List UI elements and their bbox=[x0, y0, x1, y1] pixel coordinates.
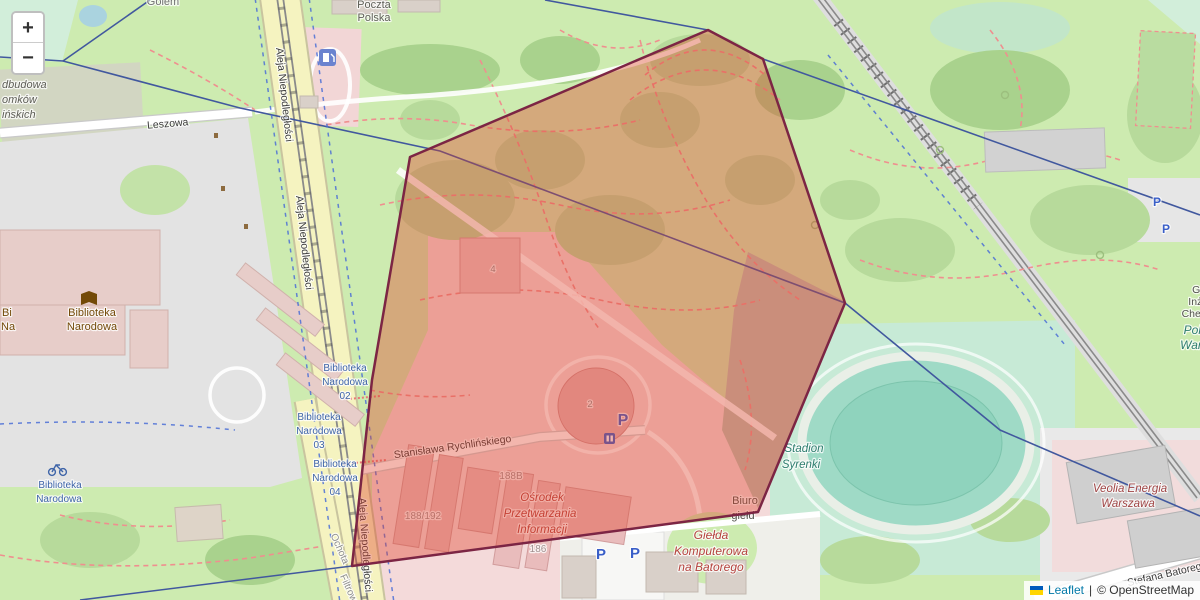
landuse-scrub bbox=[930, 2, 1070, 54]
pond bbox=[79, 5, 107, 27]
map-label-parking-p-2: P bbox=[596, 546, 606, 563]
map-label-odbudowa-1: dbudowa bbox=[2, 79, 47, 91]
building-library-main bbox=[0, 230, 160, 305]
ukraine-flag-icon bbox=[1030, 586, 1043, 595]
map-label-bus-stop-02-2: Narodowa bbox=[322, 377, 368, 388]
map-label-gielda-2: Komputerowa bbox=[674, 544, 748, 558]
leaflet-link[interactable]: Leaflet bbox=[1048, 583, 1084, 597]
map-label-poczta-polska-1: Poczta bbox=[357, 0, 392, 11]
map-label-bus-stop-03-1: Biblioteka bbox=[297, 412, 341, 423]
osm-map-svg[interactable]: GolemdbudowaomkówińskichLeszowaAleja Nie… bbox=[0, 0, 1200, 600]
map-label-veolia-2: Warszawa bbox=[1101, 498, 1154, 510]
map-label-gielda-1: Giełda bbox=[694, 528, 729, 542]
map-label-bus-stop-04-2: Narodowa bbox=[312, 473, 358, 484]
map-label-parking-p-3: P bbox=[630, 545, 640, 562]
fuel-icon bbox=[319, 49, 336, 66]
map-label-politechnika-1: Politechnika bbox=[1184, 323, 1200, 337]
map-label-biblioteka-blue-1: Biblioteka bbox=[38, 480, 82, 491]
map-label-stadion-1: Stadion bbox=[784, 443, 823, 455]
map-label-gmach-2: Inżynierii bbox=[1188, 296, 1200, 308]
map-label-biblioteka-clip-2: Na bbox=[1, 321, 16, 333]
building-allotment bbox=[175, 504, 223, 541]
map-label-biblioteka-clip-1: Bi bbox=[2, 307, 12, 319]
map-label-bus-stop-02-3: 02 bbox=[339, 391, 351, 402]
map-label-bus-stop-03-2: Narodowa bbox=[296, 426, 342, 437]
map-viewport[interactable]: GolemdbudowaomkówińskichLeszowaAleja Nie… bbox=[0, 0, 1200, 600]
map-label-parking-p-4: P bbox=[1153, 195, 1161, 209]
map-label-bus-stop-04-3: 04 bbox=[329, 487, 341, 498]
map-label-bus-stop-02-1: Biblioteka bbox=[323, 363, 367, 374]
zoom-control: + − bbox=[11, 11, 45, 75]
map-label-politechnika-2: Warszawska bbox=[1180, 338, 1200, 352]
map-label-parking-p-5: P bbox=[1162, 222, 1170, 236]
map-label-gmach-1: Gmach bbox=[1192, 284, 1200, 296]
map-label-odbudowa-3: ińskich bbox=[2, 109, 36, 121]
stadium-syrenki bbox=[788, 344, 1044, 542]
sports-pitch bbox=[1136, 31, 1196, 129]
map-label-poczta-polska-2: Polska bbox=[357, 12, 391, 24]
zoom-in-button[interactable]: + bbox=[13, 13, 43, 43]
map-label-odbudowa-2: omków bbox=[2, 94, 38, 106]
map-label-gielda-3: na Batorego bbox=[678, 560, 744, 574]
map-label-bus-stop-04-1: Biblioteka bbox=[313, 459, 357, 470]
map-label-biblioteka-narodowa-2: Narodowa bbox=[67, 321, 118, 333]
map-label-addr-186: 186 bbox=[530, 544, 547, 555]
map-label-biblioteka-blue-2: Narodowa bbox=[36, 494, 82, 505]
map-label-biblioteka-narodowa-1: Biblioteka bbox=[68, 307, 117, 319]
attribution-bar: Leaflet | © OpenStreetMap bbox=[1024, 581, 1200, 600]
map-label-golem: Golem bbox=[147, 0, 179, 8]
openstreetmap-link[interactable]: © OpenStreetMap bbox=[1097, 583, 1194, 597]
map-label-gmach-3: Chemicznej bbox=[1182, 308, 1200, 320]
map-label-veolia-1: Veolia Energia bbox=[1093, 483, 1167, 495]
attribution-separator: | bbox=[1089, 583, 1092, 597]
map-label-stadion-2: Syrenki bbox=[782, 459, 821, 471]
map-label-bus-stop-03-3: 03 bbox=[313, 440, 325, 451]
zoom-out-button[interactable]: − bbox=[13, 43, 43, 73]
